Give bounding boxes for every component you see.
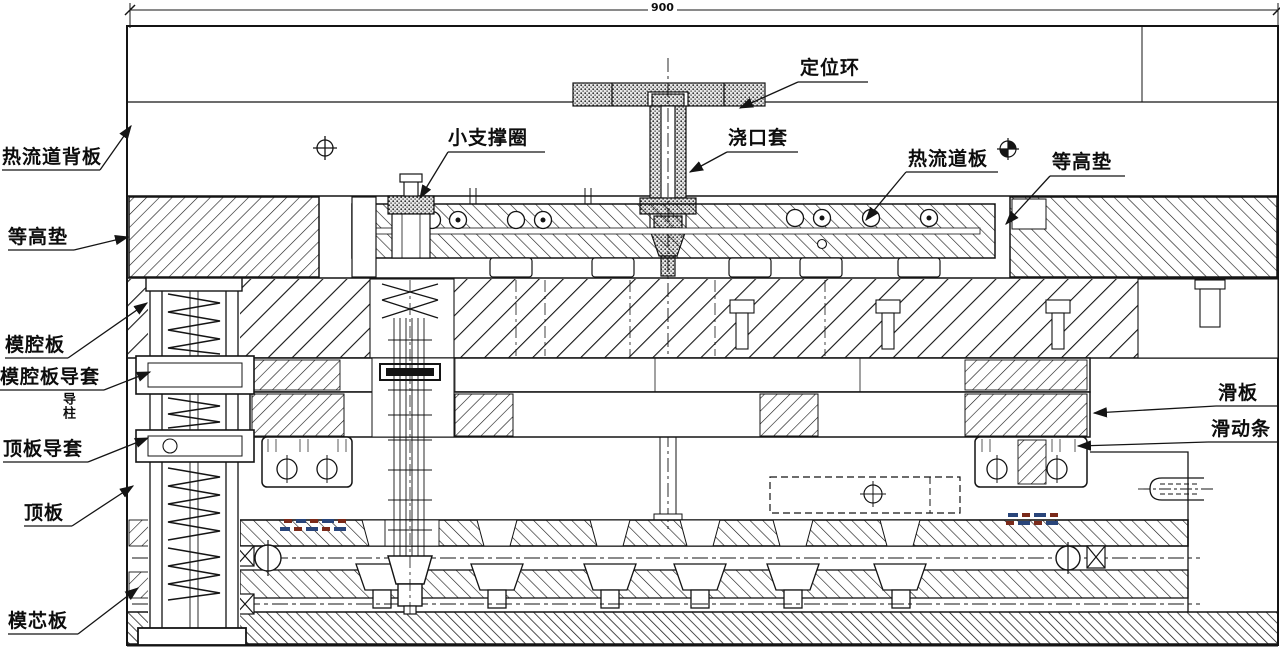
- dimension-900: 900: [648, 1, 677, 14]
- cavity-plate: [127, 279, 1278, 358]
- label-guide-pillar-vertical: 导柱: [58, 392, 77, 420]
- label-sprue-bushing: 浇口套: [728, 128, 788, 149]
- guide-pillar-column: [136, 278, 254, 645]
- label-top-plate: 顶板: [24, 503, 64, 524]
- slide-bar-right: [975, 437, 1087, 487]
- label-slide-plate: 滑板: [1218, 383, 1258, 404]
- label-spacer-right: 等高垫: [1052, 152, 1112, 173]
- label-core-plate: 模芯板: [8, 611, 68, 632]
- label-cavity-plate: 模腔板: [5, 335, 65, 356]
- top-guide-bushing-block: [136, 430, 254, 462]
- core-plate-band: [127, 612, 1278, 644]
- top-dimension: [125, 3, 1280, 28]
- mold-section-drawing: 900 热流道背板 等高垫 模腔板 模腔板导套 导柱 顶板导套 顶板 模芯板 小…: [0, 0, 1280, 648]
- locating-ring: [573, 83, 765, 106]
- cavity-guide-bushing-block: [136, 356, 254, 394]
- label-small-support-ring: 小支撑圈: [448, 128, 528, 149]
- datum-target-icon: [997, 138, 1019, 160]
- bolt-symbol: [313, 136, 337, 160]
- label-top-plate-guide-bushing: 顶板导套: [3, 439, 83, 460]
- pillar-foot: [138, 628, 246, 645]
- label-cavity-plate-guide-bushing: 模腔板导套: [0, 367, 100, 388]
- spacer-block-right: [1010, 197, 1277, 277]
- label-slide-bar: 滑动条: [1211, 419, 1271, 440]
- spacer-block-left: [129, 197, 319, 277]
- ejector-plate-band: [129, 570, 1188, 598]
- label-spacer-left: 等高垫: [8, 227, 68, 248]
- ejector-pocket-dashed: [770, 477, 960, 513]
- label-locating-ring: 定位环: [800, 58, 860, 79]
- drawing-canvas: [0, 0, 1280, 648]
- slide-bar-left: [262, 437, 352, 487]
- label-hot-runner-back-plate: 热流道背板: [2, 147, 102, 168]
- label-hot-runner-plate: 热流道板: [908, 149, 988, 170]
